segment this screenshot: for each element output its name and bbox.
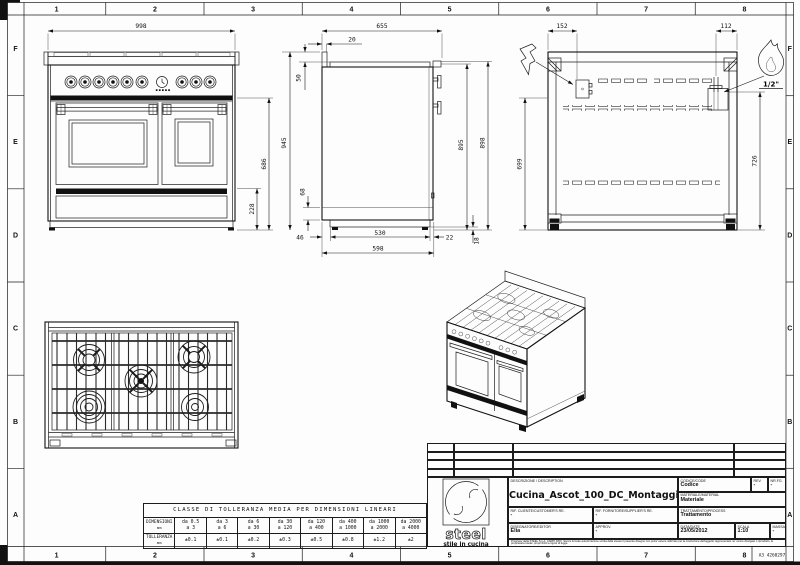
control-knobs: [65, 76, 216, 88]
svg-text:A: A: [13, 512, 18, 519]
revision-exec-cell: [734, 460, 786, 469]
date-cell: DATA/DATE23/05/2012: [678, 523, 735, 539]
dim-rear-gas-x: 112: [720, 23, 731, 30]
tolerance-value: ±0.2: [238, 534, 269, 549]
material-cell: MATERIALE/MATERIALMateriale: [678, 492, 786, 508]
description-cell: DESCRIZIONE / DESCRIPTION Cucina_Ascot_1…: [508, 477, 678, 507]
dim-side-front-inset: 22: [446, 235, 454, 242]
svg-text:1: 1: [55, 553, 59, 560]
burner-bottom-left: [73, 391, 105, 423]
dim-front-height: 686: [261, 158, 268, 169]
svg-text:5: 5: [448, 553, 452, 560]
dim-rear-gas-h: 726: [752, 155, 759, 166]
svg-text:C: C: [787, 326, 792, 333]
frame-column-labels-bottom: 1 2 3 4 5 6 7 8 A3 4260297: [55, 553, 786, 560]
svg-text:3: 3: [251, 553, 255, 560]
svg-text:3: 3: [251, 7, 255, 14]
tolerance-table: CLASSE DI TOLLERANZA MEDIA PER DIMENSION…: [143, 503, 427, 549]
supplier-cell: RIF. FORNITORE/SUPPLIER'S RE.-: [593, 507, 678, 523]
svg-text:F: F: [788, 46, 793, 53]
tolerance-value: ±0.1: [175, 534, 206, 549]
dim-side-splash: 50: [296, 74, 303, 82]
svg-text:2: 2: [153, 7, 157, 14]
revision-mod-cell: [513, 452, 734, 461]
svg-text:4: 4: [349, 553, 353, 560]
tolerance-table-title: CLASSE DI TOLLERANZA MEDIA PER DIMENSION…: [144, 504, 427, 518]
nr-value: -: [769, 483, 785, 490]
dim-side-height: 945: [281, 137, 288, 148]
svg-text:1: 1: [55, 7, 59, 14]
rear-view: 152 112: [517, 23, 784, 230]
svg-text:E: E: [13, 139, 18, 146]
frame-row-labels-right: F E D C B A: [787, 46, 792, 519]
svg-text:D: D: [787, 233, 792, 240]
dim-rear-electric-h: 699: [517, 158, 524, 169]
dim-side-h895: 895: [458, 139, 465, 150]
svg-text:7: 7: [644, 7, 648, 14]
gas-size-label: 1/2": [763, 81, 779, 89]
burner-top-left: [74, 345, 105, 376]
date-value: 23/05/2012: [679, 529, 734, 536]
svg-text:B: B: [13, 419, 18, 426]
svg-text:5: 5: [448, 7, 452, 14]
dim-side-kick: 68: [300, 188, 307, 196]
electric-connection-box: [576, 80, 592, 98]
code-value: Codice: [679, 483, 750, 490]
top-view: [45, 322, 238, 448]
legal-cell: Proprieta' della STEEL S.p.A. CARPI (MO)…: [508, 539, 786, 547]
technical-drawing-sheet: 1 2 3 4 5 6 7 8 1 2 3 4 5 6 7 8 A3 42602…: [0, 0, 800, 565]
tolerance-value: ±0.1: [206, 534, 237, 549]
dim-rear-electric-x: 152: [556, 23, 567, 30]
revision-date-cell: [454, 443, 513, 452]
svg-text:B: B: [787, 419, 792, 426]
svg-text:2: 2: [153, 553, 157, 560]
tolerance-value: ±2: [395, 534, 427, 549]
tolerance-range: da 30a 120: [269, 518, 300, 534]
front-view: 998: [44, 23, 273, 231]
tolerance-value: ±0.5: [301, 534, 332, 549]
tolerance-range: da 400a 1000: [332, 518, 363, 534]
oven-door-handles: [57, 105, 226, 115]
tolerance-range: da 120a 400: [301, 518, 332, 534]
tolerance-range: da 1000a 2000: [364, 518, 395, 534]
dim-front-base: 228: [249, 203, 256, 214]
revision-date-cell: [454, 452, 513, 461]
approv-cell: APPROV.-: [593, 523, 678, 539]
sheet-code: A3 4260297: [759, 553, 786, 559]
rev-value: -: [752, 483, 767, 490]
approv-value: -: [594, 529, 677, 536]
mass-cell: MASSA/MASS kg-: [770, 523, 786, 539]
process-value: Trattamento: [679, 513, 785, 520]
supplier-value: -: [594, 513, 677, 520]
svg-text:6: 6: [546, 553, 550, 560]
tolerance-range: da 3a 6: [206, 518, 237, 534]
clock-icon: [156, 77, 170, 92]
svg-text:D: D: [13, 233, 18, 240]
tolerance-value: ±0.8: [332, 534, 363, 549]
revision-mod-cell: [513, 460, 734, 469]
dim-side-foot: 18: [474, 237, 481, 245]
svg-text:C: C: [13, 326, 18, 333]
dim-side-h898: 898: [480, 137, 487, 148]
lightning-icon: [520, 44, 536, 75]
burner-center-wok: [125, 365, 157, 397]
scale-cell: SCALA1:10: [735, 523, 770, 539]
dim-front-width: 998: [135, 23, 146, 30]
tolerance-tol-label: TOLLERANZAmm: [144, 534, 175, 549]
revision-exec-cell: [734, 443, 786, 452]
svg-text:7: 7: [644, 553, 648, 560]
perspective-view: [447, 271, 585, 432]
svg-text:4: 4: [349, 7, 353, 14]
rev-cell: REV.-: [751, 477, 768, 492]
svg-text:E: E: [787, 139, 792, 146]
dim-side-top-offset: 20: [348, 37, 356, 44]
dim-side-back-inset: 46: [296, 235, 304, 242]
svg-text:8: 8: [742, 553, 746, 560]
burner-bottom-right: [182, 394, 209, 421]
side-view: 655 20 50 945 68: [281, 23, 492, 257]
scale-value: 1:10: [736, 529, 769, 536]
revision-exec-cell: [734, 452, 786, 461]
logo-cell: [427, 477, 508, 547]
code-cell: CODICE/CODECodice: [678, 477, 751, 492]
legal-text: Proprieta' della STEEL S.p.A. CARPI (MO)…: [509, 540, 785, 547]
customer-value: -: [509, 513, 592, 520]
svg-text:F: F: [13, 46, 18, 53]
title-block: DESCRIZIONE / DESCRIPTION Cucina_Ascot_1…: [427, 477, 786, 547]
drawing-title: Cucina_Ascot_100_DC_Montaggio: [509, 490, 677, 501]
customer-cell: RIF. CLIENTE/CUSTOMER'S RE.-: [508, 507, 593, 523]
editor-value: Elia: [509, 529, 592, 536]
flame-icon: [758, 40, 783, 76]
dim-side-depth: 655: [376, 23, 387, 30]
mass-value: -: [771, 529, 785, 536]
tolerance-value: ±0.3: [269, 534, 300, 549]
editor-cell: DISEGNATORE/EDITORElia: [508, 523, 593, 539]
svg-text:8: 8: [742, 7, 746, 14]
front-trim-ticks: [62, 434, 222, 437]
tolerance-value: ±1.2: [364, 534, 395, 549]
grate-bars-horizontal: [52, 341, 232, 413]
tolerance-dim-label: DIMENSIONImm: [144, 518, 175, 534]
material-value: Materiale: [679, 497, 785, 504]
process-cell: TRATTAMENTO/PROCESSTrattamento: [678, 507, 786, 523]
svg-text:A: A: [787, 512, 792, 519]
dim-side-base-total: 598: [372, 246, 383, 253]
tolerance-range: da 6a 30: [238, 518, 269, 534]
description-label: DESCRIZIONE / DESCRIPTION: [509, 478, 677, 483]
nr-cell: NR.FG.-: [768, 477, 786, 492]
svg-text:6: 6: [546, 7, 550, 14]
revision-table: 3 2 1 NUM DATA MODIFICA ESECUTORE: [427, 443, 786, 477]
revision-date-cell: [454, 460, 513, 469]
tolerance-range: da 2000a 4000: [395, 518, 427, 534]
burner-top-right: [178, 341, 210, 373]
tolerance-range: da 0.5a 3: [175, 518, 206, 534]
frame-row-labels-left: F E D C B A: [13, 46, 18, 519]
dim-side-base-depth: 530: [374, 230, 385, 237]
revision-mod-cell: [513, 443, 734, 452]
